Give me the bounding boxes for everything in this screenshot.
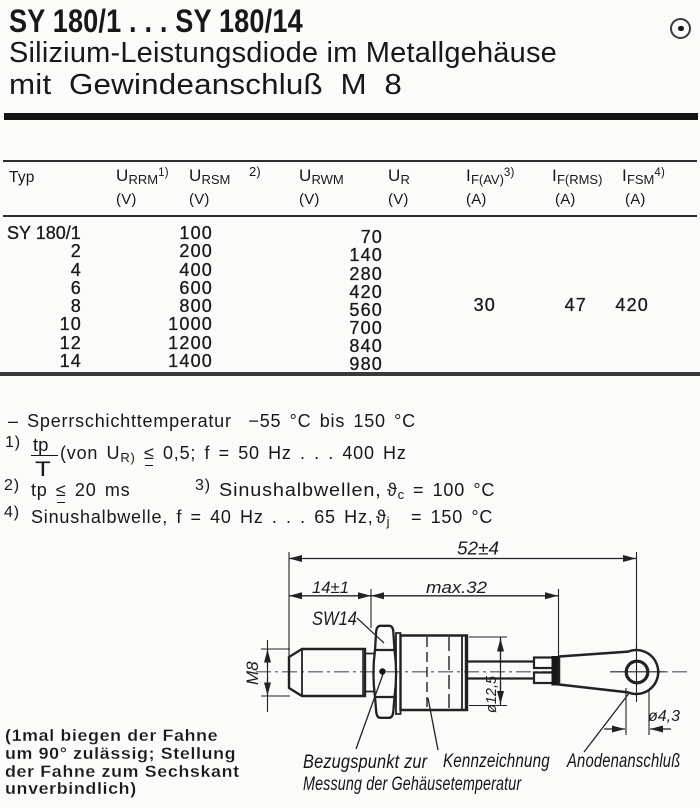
- svg-text:M8: M8: [243, 661, 262, 685]
- svg-text:ø12,5: ø12,5: [484, 675, 500, 713]
- svg-text:52±4: 52±4: [457, 539, 499, 559]
- svg-text:max.32: max.32: [426, 578, 488, 597]
- svg-text:SW14: SW14: [312, 609, 357, 630]
- svg-text:ø4,3: ø4,3: [648, 708, 680, 725]
- svg-text:14±1: 14±1: [312, 578, 349, 597]
